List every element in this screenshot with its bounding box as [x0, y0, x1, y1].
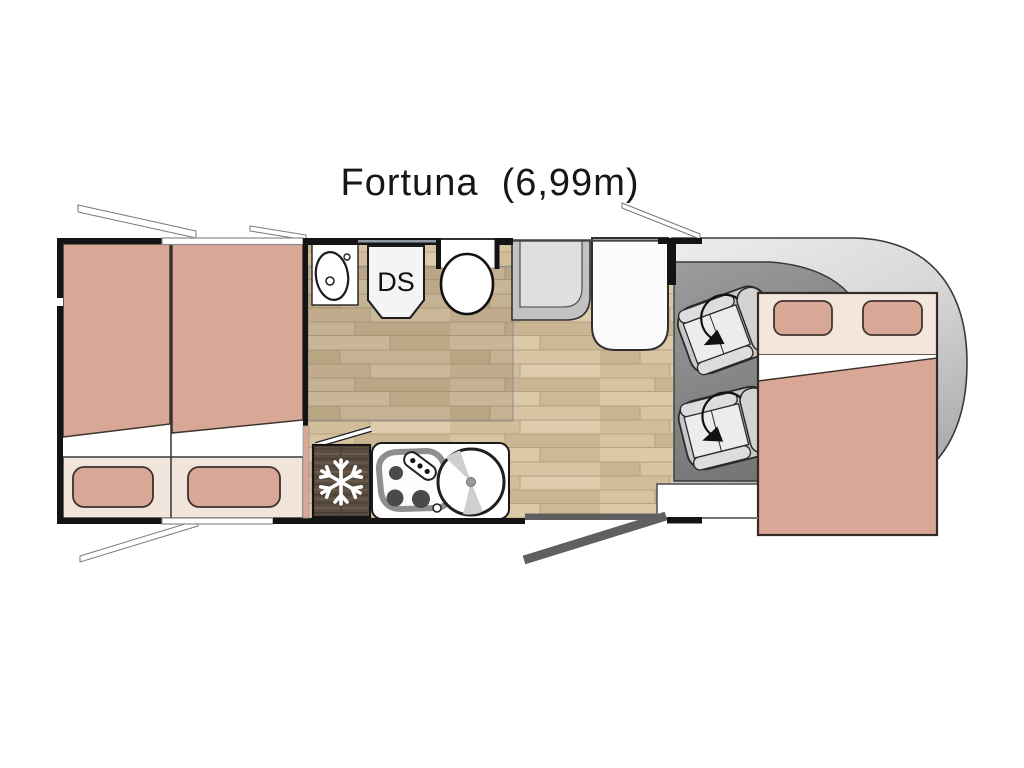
toilet-niche-wall-left [436, 238, 441, 269]
wall-cab-divider [667, 238, 676, 285]
front-bed-pillow-left [774, 301, 832, 335]
gas-valve-icon [433, 504, 441, 512]
toilet-niche-top-line [438, 238, 497, 240]
washbasin-drain-icon [326, 277, 334, 285]
window-bottom [162, 518, 273, 524]
hob-burner-small [389, 466, 403, 480]
table [592, 238, 668, 350]
wall-top-window-strip [358, 240, 436, 243]
toilet [441, 254, 493, 314]
shower-label: DS [377, 267, 415, 297]
hob-burner-large [412, 490, 430, 508]
wall-top-left [57, 238, 162, 245]
kitchen-side-panel [303, 426, 309, 518]
wall-bottom-step-line [702, 517, 758, 519]
wall-left-gap [57, 298, 63, 306]
wall-cap-cab [658, 238, 702, 244]
wall-bottom-left [57, 518, 162, 524]
rear-bed-left-pillow [73, 467, 153, 507]
bench-cushion [520, 240, 582, 307]
wall-bottom-door-end [667, 517, 702, 524]
rear-bed-right-mattress [172, 242, 303, 433]
hob-burner-medium [387, 490, 404, 507]
washbasin-tap-icon [344, 254, 350, 260]
wall-bed-bathroom-divider [303, 242, 308, 426]
plan-title: Fortuna (6,99m) [341, 162, 640, 204]
wall-bottom-mid [273, 518, 525, 524]
wall-left [57, 238, 63, 524]
front-bed-pillow-right [863, 301, 922, 335]
floorplan-page: Fortuna (6,99m) DS [0, 0, 1024, 768]
floorplan-canvas: Fortuna (6,99m) DS [0, 0, 1024, 768]
front-drop-down-bed [758, 293, 937, 535]
rear-bed-left-mattress [63, 242, 170, 437]
front-bed-mattress [758, 358, 937, 535]
rear-bed-right-pillow [188, 467, 280, 507]
rear-bed-area [63, 242, 303, 518]
wall-top-lounge-line [513, 240, 674, 242]
wall-top-bath-end [497, 238, 513, 245]
entry-step [657, 484, 758, 518]
door-threshold [525, 514, 660, 521]
sink-drain-icon [467, 478, 476, 487]
window-top [162, 238, 303, 245]
